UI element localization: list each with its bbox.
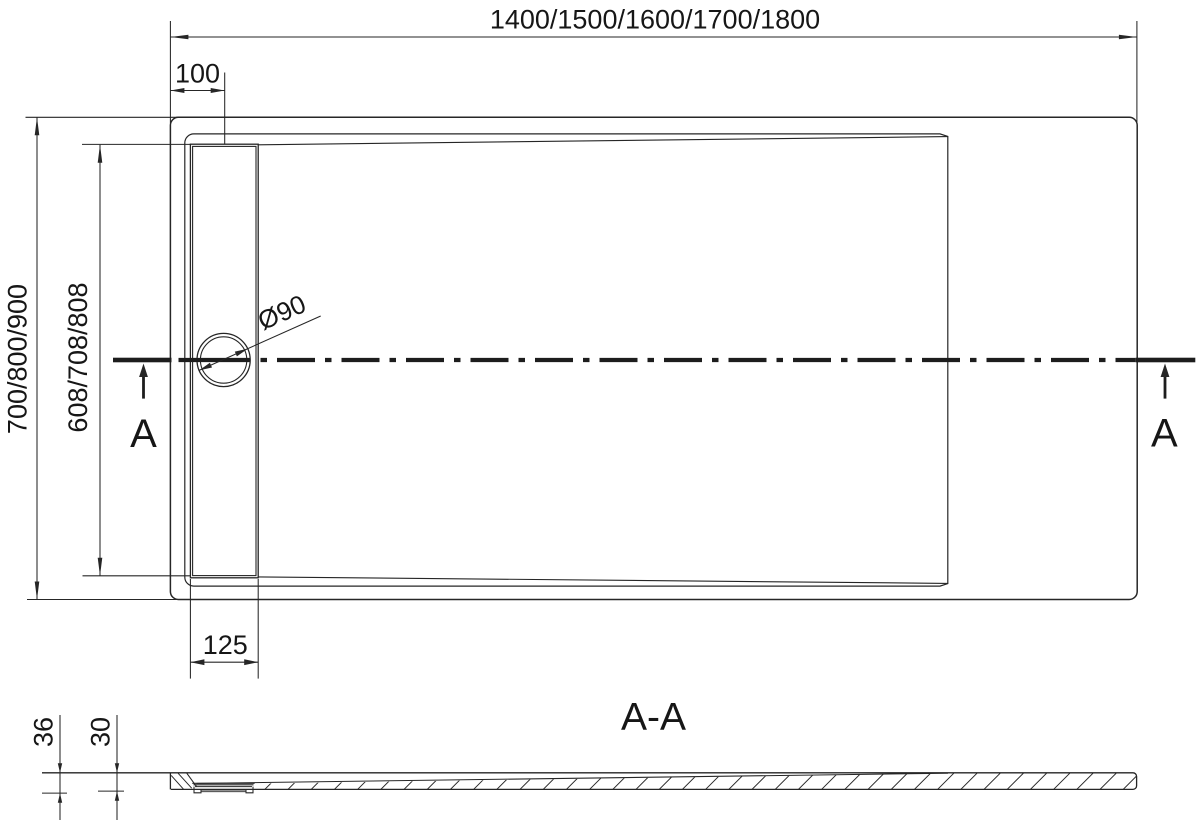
svg-text:Ø90: Ø90 — [253, 289, 310, 336]
svg-text:125: 125 — [203, 630, 248, 660]
svg-text:A-A: A-A — [621, 696, 686, 739]
svg-text:A: A — [1151, 412, 1178, 456]
svg-text:1400/1500/1600/1700/1800: 1400/1500/1600/1700/1800 — [490, 5, 820, 35]
svg-text:700/800/900: 700/800/900 — [3, 284, 33, 434]
svg-text:A: A — [130, 412, 157, 456]
svg-text:30: 30 — [86, 717, 116, 747]
svg-text:36: 36 — [29, 717, 59, 747]
svg-text:100: 100 — [175, 59, 220, 89]
svg-text:608/708/808: 608/708/808 — [63, 282, 93, 432]
